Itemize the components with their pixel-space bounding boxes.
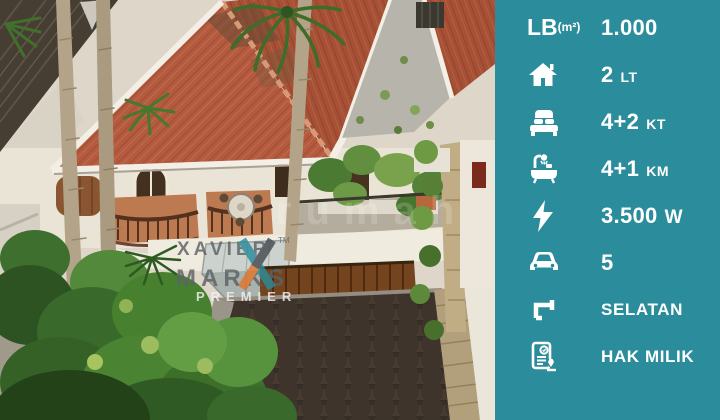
electricity-value: 3.500 (601, 203, 658, 229)
villa-aerial-illustration: rumah XAVIER MARKS TM PREMIER (0, 0, 495, 420)
spec-row-bathrooms: 4+1 KM (495, 145, 720, 192)
listing-photo: rumah XAVIER MARKS TM PREMIER (0, 0, 495, 420)
bath-icon (527, 153, 561, 185)
svg-text:TM: TM (278, 236, 290, 245)
spec-row-electricity: 3.500 W (495, 192, 720, 239)
spec-row-carport: 5 (495, 239, 720, 286)
specs-sidebar: LB(m²) 1.000 2 LT 4+2 (495, 0, 720, 420)
car-icon (527, 249, 561, 277)
spec-row-building-area: LB(m²) 1.000 (495, 4, 720, 51)
direction-icon (527, 294, 559, 326)
property-listing-card: rumah XAVIER MARKS TM PREMIER LB(m²) (0, 0, 720, 420)
bathrooms-unit: KM (646, 163, 669, 179)
floors-value: 2 (601, 62, 614, 88)
house-icon (527, 59, 559, 91)
spec-row-bedrooms: 4+2 KT (495, 98, 720, 145)
bathrooms-value: 4+1 (601, 156, 639, 182)
lb-area-label: LB(m²) (527, 16, 601, 39)
bedrooms-unit: KT (646, 116, 666, 132)
carport-value: 5 (601, 250, 614, 276)
certificate-value: HAK MILIK (601, 347, 694, 367)
portal-watermark: rumah (276, 189, 468, 233)
certificate-icon (527, 340, 559, 374)
spec-row-facing: SELATAN (495, 286, 720, 333)
bed-icon (527, 106, 561, 138)
spec-row-certificate: HAK MILIK (495, 333, 720, 380)
facing-value: SELATAN (601, 300, 683, 320)
svg-text:PREMIER: PREMIER (196, 289, 297, 304)
bedrooms-value: 4+2 (601, 109, 639, 135)
floors-unit: LT (621, 69, 638, 85)
lightning-icon (527, 199, 559, 233)
spec-row-floors: 2 LT (495, 51, 720, 98)
building-area-value: 1.000 (601, 15, 658, 41)
electricity-unit: W (665, 207, 683, 229)
